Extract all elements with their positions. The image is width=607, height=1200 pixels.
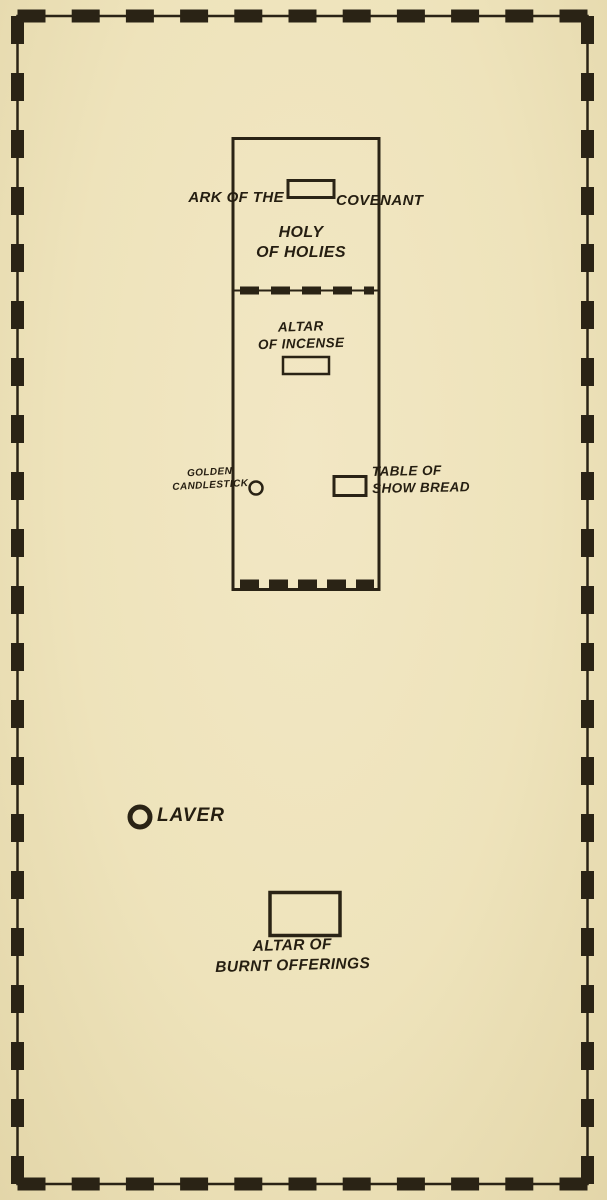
courtyard-border: [18, 16, 588, 1184]
ark-of-the-covenant-rect: [288, 181, 334, 198]
label-altar-of-burnt-offerings: ALTAR OF BURNT OFFERINGS: [190, 933, 396, 977]
courtyard-border-line: [18, 16, 588, 1184]
label-table-of-showbread: TABLE OF SHOW BREAD: [372, 461, 483, 497]
diagram-linework: [0, 0, 607, 1200]
label-altar-of-incense: ALTAR OF INCENSE: [235, 316, 368, 353]
altar-of-burnt-offerings-rect: [270, 893, 340, 936]
tabernacle-plan-diagram: ARK OF THE COVENANT HOLY OF HOLIES ALTAR…: [0, 0, 607, 1200]
label-covenant: COVENANT: [336, 192, 436, 210]
label-golden-candlestick: GOLDEN CANDLESTICK: [159, 463, 260, 494]
laver-circle: [130, 807, 150, 827]
table-of-showbread-rect: [334, 477, 366, 496]
label-ark-of-the: ARK OF THE: [168, 189, 284, 207]
altar-of-incense-rect: [283, 357, 329, 374]
label-holy-of-holies: HOLY OF HOLIES: [235, 223, 367, 263]
label-laver: LAVER: [157, 804, 267, 827]
